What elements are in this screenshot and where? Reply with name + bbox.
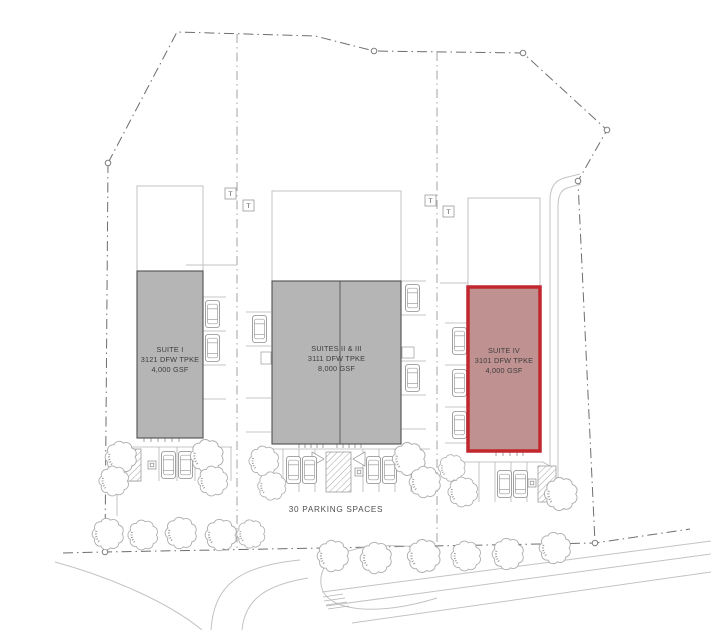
car-icon xyxy=(162,452,176,479)
building-suites-2-3[interactable]: SUITES II & III 3111 DFW TPKE 8,000 GSF xyxy=(272,281,401,444)
tree-icon xyxy=(92,518,123,549)
tree-icon xyxy=(448,477,478,507)
transformer-icon: T xyxy=(425,195,436,206)
transformer-icons: T T T T xyxy=(225,188,454,217)
car-icon xyxy=(206,301,220,328)
tree-icon xyxy=(544,478,577,511)
door-stoop xyxy=(402,347,414,358)
building-address: 3121 DFW TPKE xyxy=(141,355,199,364)
car-icon xyxy=(303,457,317,484)
building-area: 4,000 GSF xyxy=(485,366,522,375)
car-icon xyxy=(206,335,220,362)
keynote-icon xyxy=(528,479,536,487)
building-area: 8,000 GSF xyxy=(318,364,355,373)
car-icon xyxy=(453,328,467,355)
tree-icon xyxy=(407,540,440,573)
tree-icon xyxy=(205,519,236,550)
tree-icon xyxy=(99,466,129,496)
site-plan-canvas: T T T T xyxy=(0,0,711,630)
car-icon xyxy=(406,285,420,312)
car-icon xyxy=(453,370,467,397)
tree-icon xyxy=(492,538,523,569)
building-name: SUITE I xyxy=(157,345,184,354)
building-suite-4-highlighted[interactable]: SUITE IV 3101 DFW TPKE 4,000 GSF xyxy=(468,287,540,451)
tree-icon xyxy=(249,446,279,476)
car-icon xyxy=(498,471,512,498)
car-icon xyxy=(367,457,381,484)
building-name: SUITE IV xyxy=(488,346,520,355)
tree-icon xyxy=(237,520,265,548)
transformer-label: T xyxy=(446,209,450,216)
transformer-label: T xyxy=(228,191,232,198)
building-name: SUITES II & III xyxy=(311,344,361,353)
tree-icon xyxy=(165,517,196,548)
transformer-label: T xyxy=(428,198,432,205)
car-icon xyxy=(514,471,528,498)
keynote-icon xyxy=(148,461,156,469)
car-icon xyxy=(406,365,420,392)
car-icon xyxy=(253,316,267,343)
tree-icon xyxy=(360,542,391,573)
hatched-crosswalk xyxy=(326,452,351,492)
ramp-arrow-icon xyxy=(353,452,365,466)
road-end-hatch xyxy=(323,594,349,609)
site-plan-drawing: T T T T xyxy=(0,0,711,630)
transformer-label: T xyxy=(246,203,250,210)
door-stoop xyxy=(261,352,271,364)
tree-icon xyxy=(317,540,348,571)
transformer-icon: T xyxy=(443,206,454,217)
tree-icon xyxy=(128,520,158,550)
transformer-icon: T xyxy=(243,200,254,211)
tree-icon xyxy=(539,532,570,563)
keynote-icon xyxy=(355,468,363,476)
transformer-icon: T xyxy=(225,188,236,199)
building-area: 4,000 GSF xyxy=(151,365,188,374)
tree-icon xyxy=(409,466,440,497)
building-suite-1[interactable]: SUITE I 3121 DFW TPKE 4,000 GSF xyxy=(137,271,203,438)
tree-icon xyxy=(198,466,228,496)
car-icon xyxy=(287,457,301,484)
building-address: 3101 DFW TPKE xyxy=(475,356,533,365)
tree-icon xyxy=(258,472,286,500)
car-icon xyxy=(453,412,467,439)
building-address: 3111 DFW TPKE xyxy=(308,354,365,363)
tree-icon xyxy=(451,541,481,571)
parking-count-label: 30 PARKING SPACES xyxy=(289,505,383,514)
